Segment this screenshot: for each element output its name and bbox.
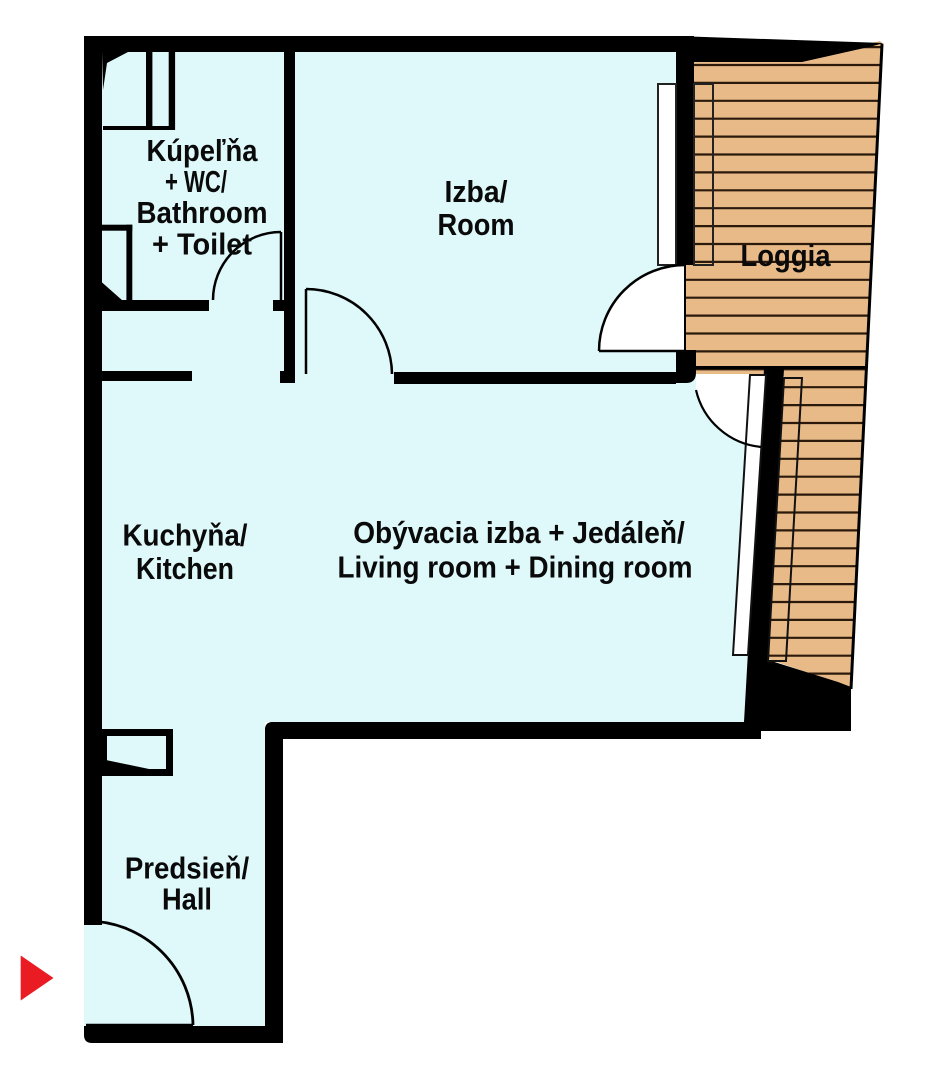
svg-text:+ WC/: + WC/ (165, 164, 227, 199)
svg-text:Obývacia izba + Jedáleň/: Obývacia izba + Jedáleň/ (353, 515, 685, 550)
svg-text:Room: Room (438, 207, 515, 242)
svg-text:Kuchyňa/: Kuchyňa/ (123, 518, 248, 553)
svg-text:Kitchen: Kitchen (136, 551, 234, 586)
svg-text:Hall: Hall (162, 882, 212, 917)
svg-text:Bathroom: Bathroom (137, 195, 268, 230)
svg-text:Predsieň/: Predsieň/ (125, 850, 250, 885)
svg-text:Living room + Dining room: Living room + Dining room (338, 550, 693, 585)
svg-text:Kúpeľňa: Kúpeľňa (147, 133, 259, 168)
svg-text:Loggia: Loggia (741, 238, 832, 273)
svg-text:Izba/: Izba/ (445, 174, 508, 209)
svg-text:+ Toilet: + Toilet (152, 227, 252, 262)
